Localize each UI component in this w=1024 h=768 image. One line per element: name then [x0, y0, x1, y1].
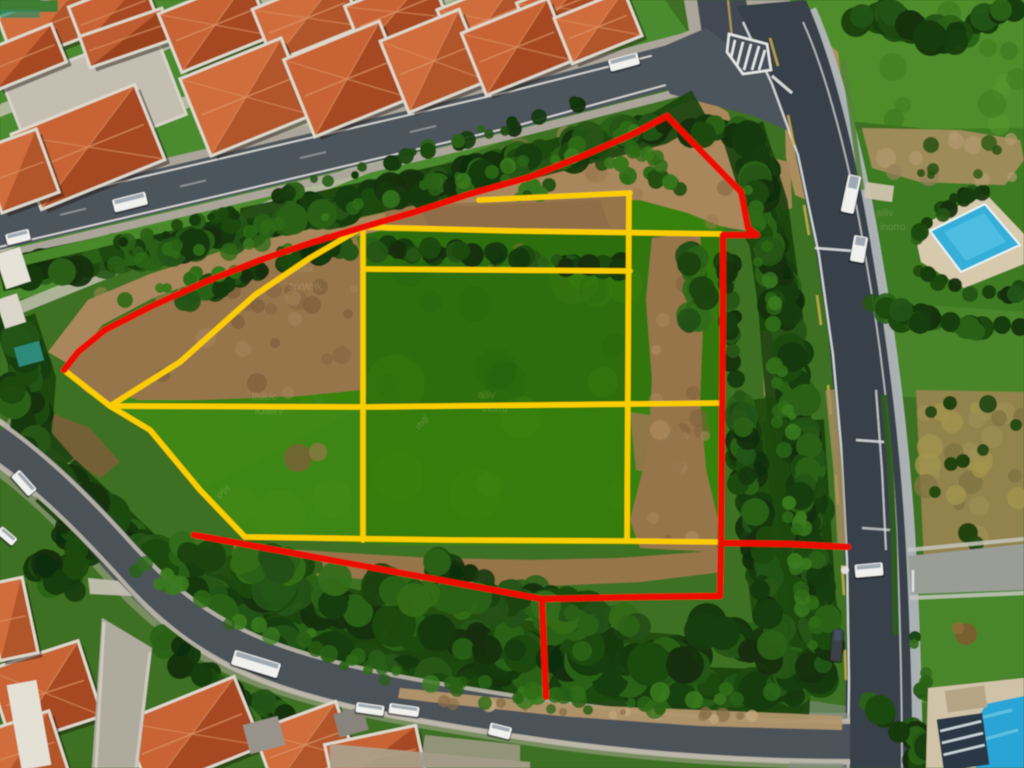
svg-text:ailiv: ailiv	[478, 390, 495, 401]
svg-text:lfsiUc: lfsiUc	[252, 392, 276, 403]
svg-text:ailiv: ailiv	[876, 208, 893, 219]
svg-text:4rxWrlk: 4rxWrlk	[288, 282, 323, 293]
svg-text:inorro: inorro	[880, 222, 906, 233]
